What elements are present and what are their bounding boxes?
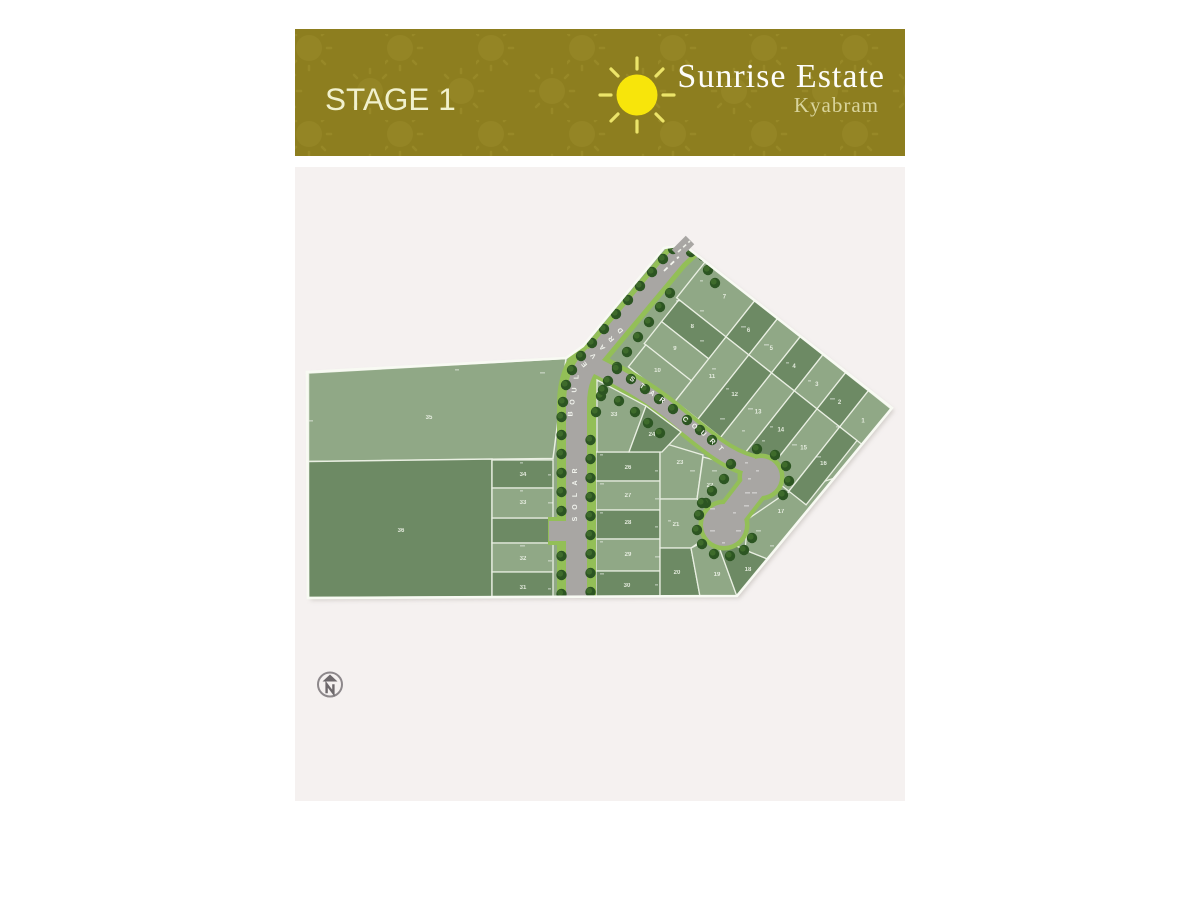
svg-text:L: L [574, 374, 581, 379]
svg-text:14: 14 [777, 427, 784, 433]
svg-text:O: O [570, 399, 577, 405]
svg-text:O: O [572, 504, 579, 510]
svg-text:28: 28 [625, 520, 632, 526]
svg-text:R: R [572, 468, 579, 473]
svg-text:A: A [572, 480, 579, 485]
svg-text:21: 21 [673, 522, 680, 528]
svg-text:S: S [572, 516, 579, 521]
svg-text:U: U [572, 387, 579, 392]
svg-text:23: 23 [677, 460, 684, 466]
svg-text:18: 18 [745, 567, 752, 573]
svg-text:36: 36 [398, 528, 405, 534]
svg-text:33: 33 [520, 500, 527, 506]
svg-text:13: 13 [755, 409, 762, 415]
svg-text:32: 32 [520, 556, 527, 562]
svg-text:16: 16 [820, 461, 827, 467]
svg-text:20: 20 [674, 570, 681, 576]
svg-text:15: 15 [800, 445, 807, 451]
svg-text:30: 30 [624, 583, 631, 589]
svg-text:29: 29 [625, 552, 632, 558]
svg-text:33: 33 [611, 412, 618, 418]
svg-text:11: 11 [709, 374, 716, 380]
svg-text:12: 12 [731, 392, 738, 398]
svg-text:31: 31 [520, 585, 527, 591]
svg-text:17: 17 [778, 509, 785, 515]
svg-text:27: 27 [625, 493, 632, 499]
svg-text:34: 34 [520, 472, 527, 478]
svg-text:19: 19 [714, 572, 721, 578]
svg-text:35: 35 [426, 415, 433, 421]
svg-text:B: B [568, 411, 575, 416]
svg-text:10: 10 [654, 368, 661, 374]
svg-text:L: L [572, 492, 579, 497]
svg-text:26: 26 [625, 465, 632, 471]
